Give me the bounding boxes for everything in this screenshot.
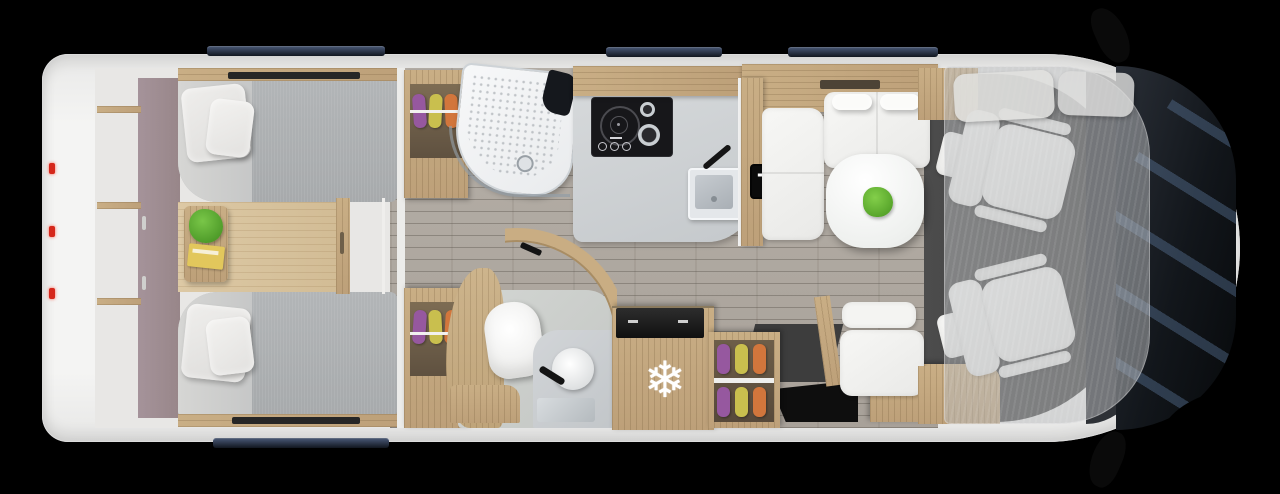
travel-seat (840, 330, 924, 396)
pillow (205, 98, 255, 159)
cushion-seam (762, 172, 824, 174)
hob (592, 98, 672, 156)
hob-burner-small (640, 102, 655, 117)
plant (189, 209, 223, 243)
washroom-shelf (537, 398, 595, 422)
tv-wall (741, 78, 763, 246)
drop-down-bed-pillow (1057, 71, 1134, 118)
snowflake-glyph: ❄ (644, 355, 686, 405)
sofa-headrest (832, 94, 872, 110)
hanging-clothes (412, 310, 427, 345)
hob-knob-icon (622, 142, 631, 151)
window-top-dinette (788, 47, 938, 57)
kitchen-sink (688, 168, 744, 220)
pillow (205, 316, 255, 377)
rear-shelf (97, 298, 141, 305)
freezer-handle (678, 320, 688, 323)
freezer-handle (628, 320, 638, 323)
dinette-side-sofa (762, 108, 824, 240)
rear-shelf (97, 106, 141, 113)
stored-clothes (753, 344, 766, 374)
sink-bowl (695, 175, 733, 209)
floor-divider (382, 198, 385, 294)
hob-burner-large (600, 106, 640, 146)
window-top-kitchen (606, 47, 722, 57)
hob-knob-icon (598, 142, 607, 151)
overhead-locker-kitchen (573, 66, 742, 96)
book-page (192, 249, 218, 256)
window-top-rear (207, 46, 385, 56)
drawer-handle (340, 232, 344, 254)
sink-drain (711, 196, 717, 202)
fridge-freezer-panel (616, 308, 704, 338)
hob-knob-icon (610, 142, 619, 151)
stored-clothes (753, 387, 766, 417)
stored-clothes (735, 387, 748, 417)
motorhome-floorplan: TV ❄ (0, 0, 1280, 494)
travel-seat-backrest (842, 302, 916, 328)
cabinet-handle (142, 276, 146, 290)
side-mirror-top (1086, 2, 1137, 67)
tail-light-icon (49, 288, 55, 299)
sofa-headrest (880, 94, 920, 110)
bed-vent (228, 72, 360, 79)
table-plant (863, 187, 893, 217)
stored-clothes (717, 344, 730, 374)
wardrobe-rail (410, 110, 462, 113)
bed-vent (232, 417, 360, 424)
stored-clothes (735, 344, 748, 374)
cabinet-handle (142, 216, 146, 230)
rear-shelf (97, 202, 141, 209)
shoe-rack-shelf (714, 378, 774, 383)
washroom-step (450, 385, 520, 423)
hanging-clothes (428, 310, 443, 345)
hob-burner-center (617, 123, 620, 126)
hob-display (610, 137, 622, 139)
snowflake-icon: ❄ (630, 338, 700, 422)
tail-light-icon (49, 226, 55, 237)
window-bottom-rear (213, 438, 389, 448)
drop-down-bed-pillow (953, 69, 1055, 122)
headboard-panel (138, 78, 180, 418)
book (187, 243, 225, 270)
tail-light-icon (49, 163, 55, 174)
hob-burner-medium (638, 124, 660, 146)
locker-recess (820, 80, 880, 89)
stored-clothes (717, 387, 730, 417)
shoe-rack (708, 332, 780, 428)
